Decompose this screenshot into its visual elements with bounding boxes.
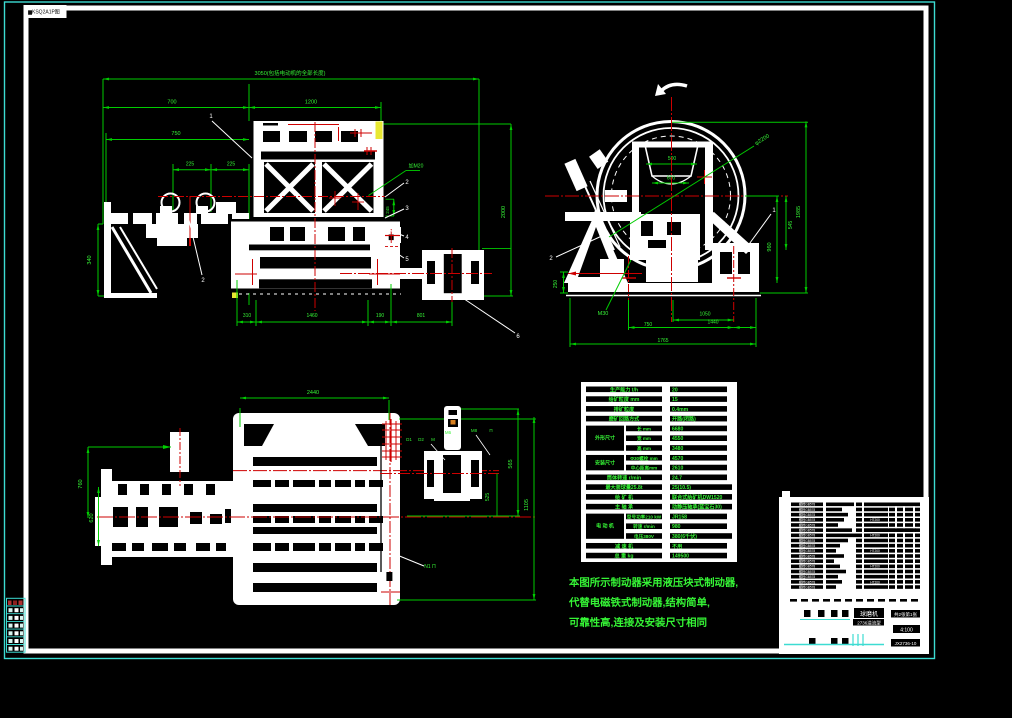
svg-text:801: 801 xyxy=(417,313,426,319)
svg-text:筒体转速 r/min: 筒体转速 r/min xyxy=(607,474,641,481)
svg-text:380(6千伏): 380(6千伏) xyxy=(672,533,697,540)
svg-text:M6: M6 xyxy=(445,430,452,435)
svg-text:电 动 机: 电 动 机 xyxy=(596,522,614,529)
svg-text:球磨机: 球磨机 xyxy=(860,610,878,618)
svg-text:主 轴 承: 主 轴 承 xyxy=(615,504,634,511)
svg-text:2440: 2440 xyxy=(307,390,319,396)
svg-text:D2: D2 xyxy=(418,437,424,442)
svg-text:3480: 3480 xyxy=(672,446,683,452)
svg-text:螺栓GB578: 螺栓GB578 xyxy=(799,543,816,548)
svg-text:N1 Π: N1 Π xyxy=(424,564,436,570)
svg-text:不用: 不用 xyxy=(672,543,682,550)
svg-text:15: 15 xyxy=(672,397,678,403)
svg-text:安装尺寸: 安装尺寸 xyxy=(595,459,615,466)
svg-text:545: 545 xyxy=(788,221,794,230)
svg-text:螺栓GB578: 螺栓GB578 xyxy=(799,569,816,574)
svg-text:245: 245 xyxy=(385,206,390,214)
svg-text:电压380V: 电压380V xyxy=(634,533,655,540)
svg-text:动静压轴承(蓝宝石30): 动静压轴承(蓝宝石30) xyxy=(672,504,722,511)
svg-text:2610: 2610 xyxy=(672,466,683,472)
svg-text:螺栓GB578: 螺栓GB578 xyxy=(799,559,816,564)
svg-text:螺栓GB578: 螺栓GB578 xyxy=(799,533,816,538)
svg-text:转速 r/min: 转速 r/min xyxy=(633,523,655,530)
svg-text:960: 960 xyxy=(767,242,773,251)
svg-text:190: 190 xyxy=(376,313,385,319)
svg-text:螺栓GB578: 螺栓GB578 xyxy=(799,522,816,527)
svg-text:JR158: JR158 xyxy=(672,514,687,520)
svg-text:M8: M8 xyxy=(471,428,478,433)
svg-text:减 速 机: 减 速 机 xyxy=(615,543,634,550)
svg-text:型号功率210 kW: 型号功率210 kW xyxy=(627,513,662,520)
svg-text:开路(闭路): 开路(闭路) xyxy=(672,416,696,423)
svg-text:25(10.5): 25(10.5) xyxy=(672,485,691,491)
svg-text:2000: 2000 xyxy=(501,206,507,218)
svg-text:2736溢流型: 2736溢流型 xyxy=(857,620,881,627)
svg-text:螺栓GB578: 螺栓GB578 xyxy=(799,507,816,512)
svg-text:中心距离mm: 中心距离mm xyxy=(631,465,658,472)
svg-text:0.4mm: 0.4mm xyxy=(672,407,689,413)
svg-text:螺栓GB578: 螺栓GB578 xyxy=(799,574,816,579)
svg-text:149500: 149500 xyxy=(672,554,689,560)
svg-text:螺栓GB578: 螺栓GB578 xyxy=(799,538,816,543)
svg-text:排矿粒度: 排矿粒度 xyxy=(614,406,635,413)
svg-text:225: 225 xyxy=(186,162,195,168)
svg-text:▆KSQ2A1P图: ▆KSQ2A1P图 xyxy=(27,10,60,16)
svg-text:4550: 4550 xyxy=(672,436,683,442)
svg-text:螺栓GB578: 螺栓GB578 xyxy=(799,517,816,522)
svg-text:Π: Π xyxy=(489,428,492,433)
svg-text:可靠性高,连接及安装尺寸相同: 可靠性高,连接及安装尺寸相同 xyxy=(569,616,707,629)
svg-text:620: 620 xyxy=(89,513,95,522)
svg-text:外形尺寸: 外形尺寸 xyxy=(595,434,615,441)
svg-text:磨矿回路方式: 磨矿回路方式 xyxy=(608,416,640,423)
svg-text:HT200: HT200 xyxy=(870,580,880,584)
svg-text:1765: 1765 xyxy=(657,338,668,344)
svg-text:700: 700 xyxy=(167,100,176,106)
svg-text:HT200: HT200 xyxy=(870,549,880,553)
svg-text:750: 750 xyxy=(171,131,180,137)
svg-text:6680: 6680 xyxy=(672,426,683,432)
svg-text:20: 20 xyxy=(672,387,678,393)
svg-text:565: 565 xyxy=(508,459,514,468)
svg-text:4:100: 4:100 xyxy=(900,628,913,634)
svg-text:螺栓GB578: 螺栓GB578 xyxy=(799,564,816,569)
svg-text:高 mm: 高 mm xyxy=(637,445,651,452)
svg-text:JX2736-10: JX2736-10 xyxy=(895,641,917,646)
svg-text:加M20: 加M20 xyxy=(409,163,424,170)
svg-text:4570: 4570 xyxy=(672,456,683,462)
svg-text:宽 mm: 宽 mm xyxy=(637,435,651,442)
svg-text:代替电磁铁式制动器,结构简单,: 代替电磁铁式制动器,结构简单, xyxy=(568,596,710,609)
svg-text:340: 340 xyxy=(87,255,93,264)
svg-text:共2张第1张: 共2张第1张 xyxy=(894,611,918,618)
svg-text:24.7: 24.7 xyxy=(672,475,682,481)
svg-text:螺栓GB578: 螺栓GB578 xyxy=(799,584,816,589)
svg-text:M30: M30 xyxy=(598,311,609,317)
svg-text:联合式给矿机DW1520: 联合式给矿机DW1520 xyxy=(672,494,723,501)
svg-text:螺栓GB578: 螺栓GB578 xyxy=(799,579,816,584)
svg-text:长 mm: 长 mm xyxy=(637,425,651,432)
svg-text:螺栓GB578: 螺栓GB578 xyxy=(799,502,816,507)
svg-text:D1: D1 xyxy=(406,437,412,442)
svg-text:750: 750 xyxy=(644,322,653,328)
svg-text:1105: 1105 xyxy=(524,499,530,511)
svg-text:3050(包括电动机的全部长度): 3050(包括电动机的全部长度) xyxy=(255,69,326,77)
svg-text:760: 760 xyxy=(78,479,84,488)
svg-text:1460: 1460 xyxy=(306,313,317,319)
svg-text:螺栓GB578: 螺栓GB578 xyxy=(799,553,816,558)
svg-text:250: 250 xyxy=(553,280,559,289)
svg-text:HT200: HT200 xyxy=(870,518,880,522)
svg-text:给矿粒度 mm: 给矿粒度 mm xyxy=(609,396,640,403)
svg-text:1985: 1985 xyxy=(796,206,802,218)
svg-text:Φ30螺栓 mm: Φ30螺栓 mm xyxy=(630,455,658,462)
svg-text:525: 525 xyxy=(485,493,491,502)
svg-text:螺栓GB578: 螺栓GB578 xyxy=(799,512,816,517)
svg-text:HT200: HT200 xyxy=(870,534,880,538)
svg-text:螺栓GB578: 螺栓GB578 xyxy=(799,528,816,533)
svg-text:总 重 kg: 总 重 kg xyxy=(615,553,634,560)
svg-text:1200: 1200 xyxy=(305,100,317,106)
svg-text:310: 310 xyxy=(243,313,252,319)
svg-text:M: M xyxy=(431,437,435,442)
svg-text:980: 980 xyxy=(672,524,681,530)
svg-text:最大装球量25.8t: 最大装球量25.8t xyxy=(605,484,642,491)
svg-text:225: 225 xyxy=(227,162,236,168)
svg-text:1440: 1440 xyxy=(707,320,718,326)
svg-text:螺栓GB578: 螺栓GB578 xyxy=(799,548,816,553)
svg-text:本图所示制动器采用液压块式制动器,: 本图所示制动器采用液压块式制动器, xyxy=(569,576,738,589)
svg-text:1050: 1050 xyxy=(699,312,710,318)
svg-text:HT200: HT200 xyxy=(870,565,880,569)
svg-text:生产能力 t/h: 生产能力 t/h xyxy=(610,386,638,393)
svg-text:500: 500 xyxy=(668,156,677,162)
svg-text:给 矿 机: 给 矿 机 xyxy=(615,494,634,501)
